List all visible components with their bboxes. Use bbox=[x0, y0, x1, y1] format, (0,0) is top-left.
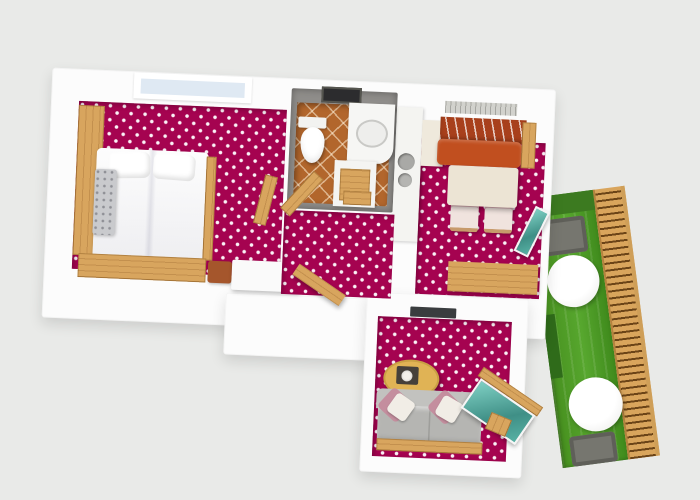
walls-entry-block bbox=[223, 292, 388, 361]
dining-chair-left bbox=[450, 203, 479, 232]
hall-sideboard-desk bbox=[447, 261, 538, 295]
gray-dotted-throw bbox=[92, 169, 117, 236]
banquette-side-panel bbox=[521, 122, 537, 169]
apartment-render bbox=[0, 0, 700, 500]
dining-chair-right bbox=[484, 205, 513, 234]
bed-pillow-right bbox=[152, 152, 196, 181]
shower-mat bbox=[343, 190, 372, 205]
dining-table bbox=[447, 165, 519, 208]
bedroom-window-glass bbox=[140, 79, 245, 99]
bedroom-window bbox=[133, 72, 252, 103]
floor-plan-scene bbox=[0, 0, 700, 500]
bathroom-window bbox=[321, 86, 362, 104]
brown-stool bbox=[207, 261, 232, 284]
banquette-seat bbox=[437, 139, 522, 169]
wall-tv bbox=[410, 307, 456, 319]
hallway-carpet bbox=[281, 210, 395, 299]
lounge-chair-lower bbox=[569, 431, 619, 467]
